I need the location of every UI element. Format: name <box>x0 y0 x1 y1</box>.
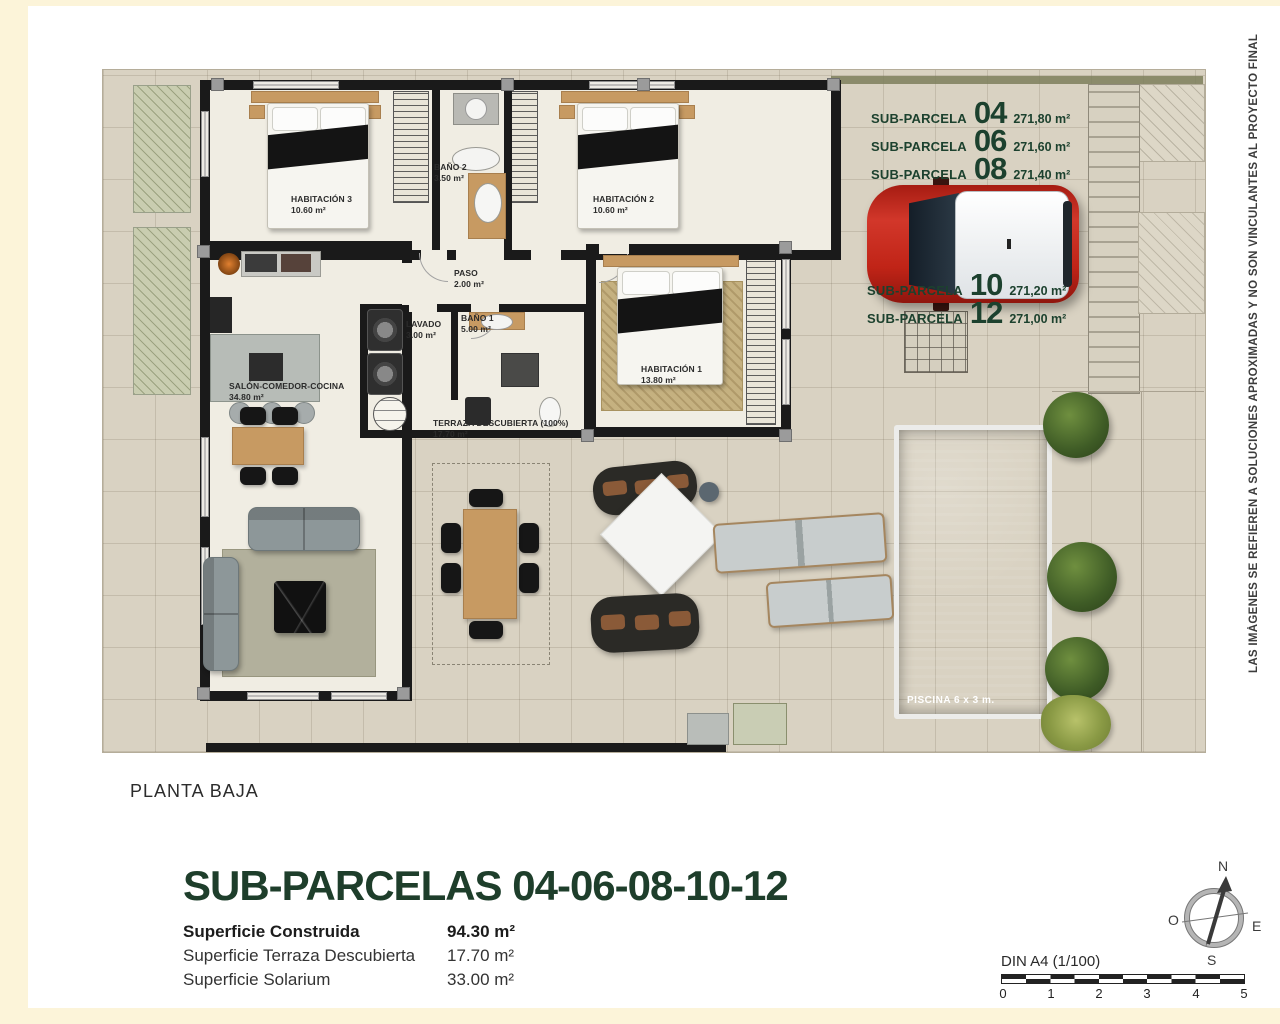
sofa <box>248 507 360 551</box>
terrace-chair <box>441 563 461 593</box>
subparcela-area: 271,20 m² <box>1009 284 1066 298</box>
pillar <box>779 429 792 442</box>
scale-tick: 1 <box>1047 986 1054 1001</box>
outdoor-sofa <box>590 592 701 654</box>
room-label-habitacion1: HABITACIÓN 1 13.80 m² <box>641 364 702 386</box>
subparcela-area: 271,00 m² <box>1009 312 1066 326</box>
shower-tray <box>501 353 539 387</box>
window <box>201 111 209 177</box>
fridge <box>210 297 232 333</box>
sun-lounger <box>766 574 895 629</box>
wardrobe <box>746 257 776 425</box>
sliding-door <box>331 692 387 700</box>
dining-chair <box>240 407 266 425</box>
doorway <box>531 250 561 260</box>
dining-chair <box>272 407 298 425</box>
wall-segment <box>586 427 791 437</box>
room-area: 17.70 m² <box>433 429 568 440</box>
room-name: HABITACIÓN 2 <box>593 194 654 205</box>
subparcela-area: 271,40 m² <box>1013 168 1070 182</box>
floor-plan: PISCINA 6 x 3 m. SUB-PARCELA 04 271,80 m… <box>102 69 1206 753</box>
compass-east: E <box>1252 918 1261 934</box>
terrace-chair <box>441 523 461 553</box>
outdoor-shower <box>687 713 729 745</box>
patio-zone <box>1138 212 1205 314</box>
floor-label: PLANTA BAJA <box>130 781 259 802</box>
room-label-paso: PASO 2.00 m² <box>454 268 484 290</box>
subparcela-prefix: SUB-PARCELA <box>871 139 967 154</box>
toilet <box>474 183 502 223</box>
disclaimer-vertical-text: LAS IMÁGENES SE REFIEREN A SOLUCIONES AP… <box>1248 22 1268 684</box>
subparcela-prefix: SUB-PARCELA <box>871 111 967 126</box>
coffee-table <box>274 581 326 633</box>
room-area: 3.00 m² <box>406 330 441 341</box>
bush <box>1047 542 1117 612</box>
subparcela-prefix: SUB-PARCELA <box>871 167 967 182</box>
cushion <box>602 480 627 496</box>
window <box>253 81 339 89</box>
planter <box>699 482 719 502</box>
dining-table <box>232 427 304 465</box>
subparcela-row: SUB-PARCELA 04 271,80 m² <box>871 95 1070 123</box>
compass-west: O <box>1168 912 1179 928</box>
room-area: 10.60 m² <box>593 205 654 216</box>
summary-value: 33.00 m² <box>447 970 514 990</box>
room-name: PASO <box>454 268 484 279</box>
doorway <box>409 304 437 312</box>
pool-label: PISCINA 6 x 3 m. <box>907 695 995 706</box>
room-label-bano2: BAÑO 2 3.50 m² <box>434 162 467 184</box>
kitchen-appliance <box>245 254 277 272</box>
subparcela-row: SUB-PARCELA 06 271,60 m² <box>871 123 1070 151</box>
subparcela-area: 271,60 m² <box>1013 140 1070 154</box>
grass-tuft <box>1041 695 1111 751</box>
bush <box>1045 637 1109 701</box>
summary-row: Superficie Terraza Descubierta 17.70 m² <box>183 946 603 966</box>
subparcela-prefix: SUB-PARCELA <box>867 283 963 298</box>
room-label-habitacion3: HABITACIÓN 3 10.60 m² <box>291 194 352 216</box>
window <box>782 259 790 329</box>
room-area: 10.60 m² <box>291 205 352 216</box>
scale-tick: 0 <box>999 986 1006 1001</box>
page: PISCINA 6 x 3 m. SUB-PARCELA 04 271,80 m… <box>0 0 1280 1024</box>
doorway <box>471 304 499 312</box>
headboard <box>603 255 739 267</box>
parcel-line <box>1141 391 1142 752</box>
stairs-strip <box>1088 84 1140 394</box>
boundary-wall <box>206 743 726 753</box>
pool: PISCINA 6 x 3 m. <box>894 425 1052 719</box>
patio-zone <box>1138 84 1205 162</box>
sink-basin <box>465 98 487 120</box>
subparcela-number: 12 <box>970 295 1002 331</box>
room-label-lavado: LAVADO 3.00 m² <box>406 319 441 341</box>
room-name: HABITACIÓN 3 <box>291 194 352 205</box>
terrace-chair <box>469 621 503 639</box>
shower-mat <box>733 703 787 745</box>
wardrobe <box>510 91 538 203</box>
summary-row: Superficie Solarium 33.00 m² <box>183 970 603 990</box>
doorway <box>599 244 629 254</box>
window <box>782 339 790 405</box>
cushion <box>601 614 626 630</box>
room-label-bano1: BAÑO 1 5.00 m² <box>461 313 494 335</box>
sofa <box>203 557 239 671</box>
room-name: TERRAZA DESCUBIERTA (100%) <box>433 418 568 429</box>
scale-bar-row <box>1002 979 1244 983</box>
headboard <box>561 91 689 103</box>
sliding-door <box>247 692 319 700</box>
scale-tick: 5 <box>1240 986 1247 1001</box>
kitchen-lamp <box>218 253 240 275</box>
room-name: HABITACIÓN 1 <box>641 364 702 375</box>
summary-label: Superficie Terraza Descubierta <box>183 946 415 965</box>
room-area: 13.80 m² <box>641 375 702 386</box>
window <box>589 81 675 89</box>
top-hedge-line <box>831 76 1203 84</box>
summary-title: SUB-PARCELAS 04-06-08-10-12 <box>183 862 788 910</box>
terrace-table <box>463 509 517 619</box>
washer <box>367 309 403 351</box>
summary-row: Superficie Construida 94.30 m² <box>183 922 603 942</box>
terrace-chair <box>469 489 503 507</box>
room-name: LAVADO <box>406 319 441 330</box>
wall-segment <box>586 244 596 437</box>
window <box>201 437 209 517</box>
cushion <box>668 611 691 627</box>
scale-bar: DIN A4 (1/100) 0 1 2 3 4 5 <box>1001 953 1251 1000</box>
room-area: 5.00 m² <box>461 324 494 335</box>
scale-tick: 4 <box>1192 986 1199 1001</box>
pillar <box>197 687 210 700</box>
summary-label: Superficie Solarium <box>183 970 330 989</box>
room-name: SALÓN-COMEDOR-COCINA <box>229 381 344 392</box>
scale-tick: 2 <box>1095 986 1102 1001</box>
wall-segment <box>200 241 412 251</box>
kitchen-appliance <box>281 254 311 272</box>
wall-segment <box>831 80 841 260</box>
dryer <box>367 353 403 395</box>
pillow <box>272 107 318 131</box>
subparcela-row: SUB-PARCELA 10 271,20 m² <box>867 267 1066 295</box>
subparcela-group-top: SUB-PARCELA 04 271,80 m² SUB-PARCELA 06 … <box>871 95 1070 179</box>
room-area: 2.00 m² <box>454 279 484 290</box>
pillow <box>622 271 670 295</box>
cushion <box>635 614 660 630</box>
hedge-strip <box>133 227 191 395</box>
room-area: 34.80 m² <box>229 392 344 403</box>
scale-label: DIN A4 (1/100) <box>1001 953 1251 970</box>
pillar <box>827 78 840 91</box>
cooktop <box>249 353 283 381</box>
doorway <box>402 263 412 305</box>
pillar <box>779 241 792 254</box>
pillar <box>211 78 224 91</box>
subparcela-row: SUB-PARCELA 12 271,00 m² <box>867 295 1066 323</box>
hedge-strip <box>133 85 191 213</box>
subparcela-area: 271,80 m² <box>1013 112 1070 126</box>
pillar <box>197 245 210 258</box>
subparcela-group-bottom: SUB-PARCELA 10 271,20 m² SUB-PARCELA 12 … <box>867 267 1066 323</box>
pillar <box>397 687 410 700</box>
scale-tick: 3 <box>1143 986 1150 1001</box>
pillar <box>637 78 650 91</box>
headboard <box>251 91 379 103</box>
room-label-salon: SALÓN-COMEDOR-COCINA 34.80 m² <box>229 381 344 403</box>
summary-value: 17.70 m² <box>447 946 514 966</box>
room-label-terraza: TERRAZA DESCUBIERTA (100%) 17.70 m² <box>433 418 568 440</box>
scale-bar-graphic <box>1001 974 1245 984</box>
bush <box>1043 392 1109 458</box>
terrace-chair <box>519 523 539 553</box>
dining-chair <box>240 467 266 485</box>
car-antenna <box>1007 239 1011 249</box>
dining-chair <box>272 467 298 485</box>
scale-ticks: 0 1 2 3 4 5 <box>1001 984 1251 1000</box>
wall-segment <box>451 308 458 400</box>
nightstand <box>559 105 575 119</box>
disclaimer-text: LAS IMÁGENES SE REFIEREN A SOLUCIONES AP… <box>1248 22 1260 684</box>
summary-value: 94.30 m² <box>447 922 515 942</box>
pillar <box>501 78 514 91</box>
pillar <box>581 429 594 442</box>
summary-label: Superficie Construida <box>183 922 360 941</box>
room-area: 3.50 m² <box>434 173 467 184</box>
room-name: BAÑO 2 <box>434 162 467 173</box>
pillow <box>582 107 628 131</box>
subparcela-row: SUB-PARCELA 08 271,40 m² <box>871 151 1070 179</box>
sun-lounger <box>712 512 887 574</box>
nightstand <box>679 105 695 119</box>
wardrobe <box>393 91 429 203</box>
room-name: BAÑO 1 <box>461 313 494 324</box>
compass-north: N <box>1218 858 1228 874</box>
subparcela-number: 08 <box>974 151 1006 187</box>
bomba-stamp <box>373 397 407 431</box>
terrace-chair <box>519 563 539 593</box>
room-label-habitacion2: HABITACIÓN 2 10.60 m² <box>593 194 654 216</box>
nightstand <box>249 105 265 119</box>
subparcela-prefix: SUB-PARCELA <box>867 311 963 326</box>
